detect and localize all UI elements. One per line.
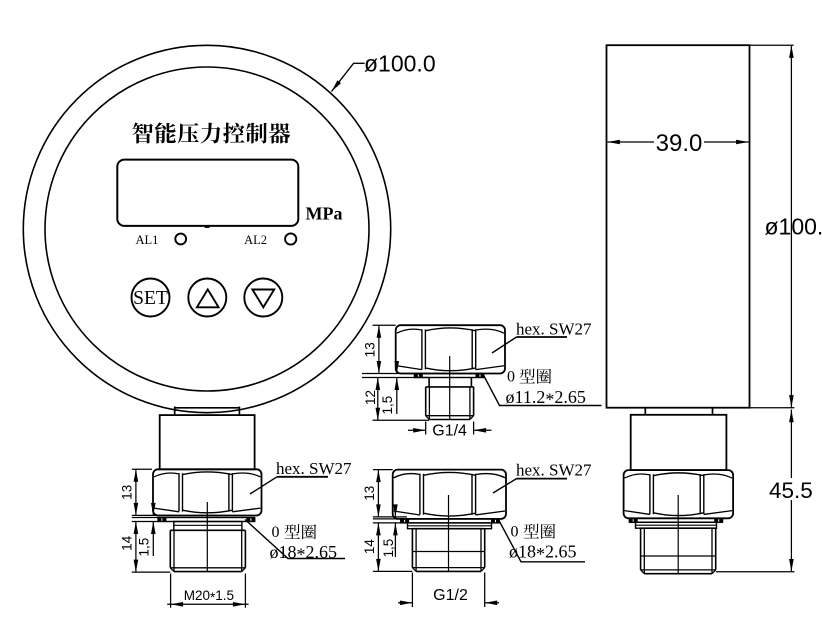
svg-text:AL2: AL2 — [244, 233, 267, 247]
svg-text:SET: SET — [133, 288, 168, 309]
svg-text:hex. SW27: hex. SW27 — [516, 319, 592, 338]
svg-text:13: 13 — [120, 485, 135, 500]
svg-text:1,5: 1,5 — [381, 539, 396, 558]
svg-text:ø100.0: ø100.0 — [765, 214, 822, 240]
svg-text:AL1: AL1 — [136, 233, 159, 247]
svg-text:0: 0 — [272, 524, 280, 541]
svg-text:M20*1.5: M20*1.5 — [184, 588, 234, 605]
svg-text:MPa: MPa — [306, 204, 343, 224]
svg-text:G1/2: G1/2 — [433, 587, 468, 604]
svg-text:13: 13 — [363, 342, 378, 357]
svg-text:ø18*2.65: ø18*2.65 — [509, 542, 577, 565]
svg-text:hex. SW27: hex. SW27 — [516, 461, 592, 480]
svg-text:ø100.0: ø100.0 — [364, 51, 436, 77]
svg-text:1,5: 1,5 — [380, 396, 395, 415]
svg-text:0: 0 — [511, 524, 519, 541]
svg-text:45.5: 45.5 — [769, 478, 813, 503]
svg-text:39.0: 39.0 — [656, 130, 703, 157]
svg-text:13: 13 — [362, 486, 377, 501]
svg-text:1,5: 1,5 — [137, 538, 152, 557]
svg-text:14: 14 — [362, 539, 377, 555]
svg-text:14: 14 — [120, 535, 135, 551]
svg-text:12: 12 — [363, 390, 378, 405]
svg-text:hex. SW27: hex. SW27 — [276, 459, 352, 478]
svg-text:ø18*2.65: ø18*2.65 — [270, 542, 338, 565]
svg-text:0: 0 — [507, 369, 515, 386]
svg-text:G1/4: G1/4 — [432, 422, 467, 439]
